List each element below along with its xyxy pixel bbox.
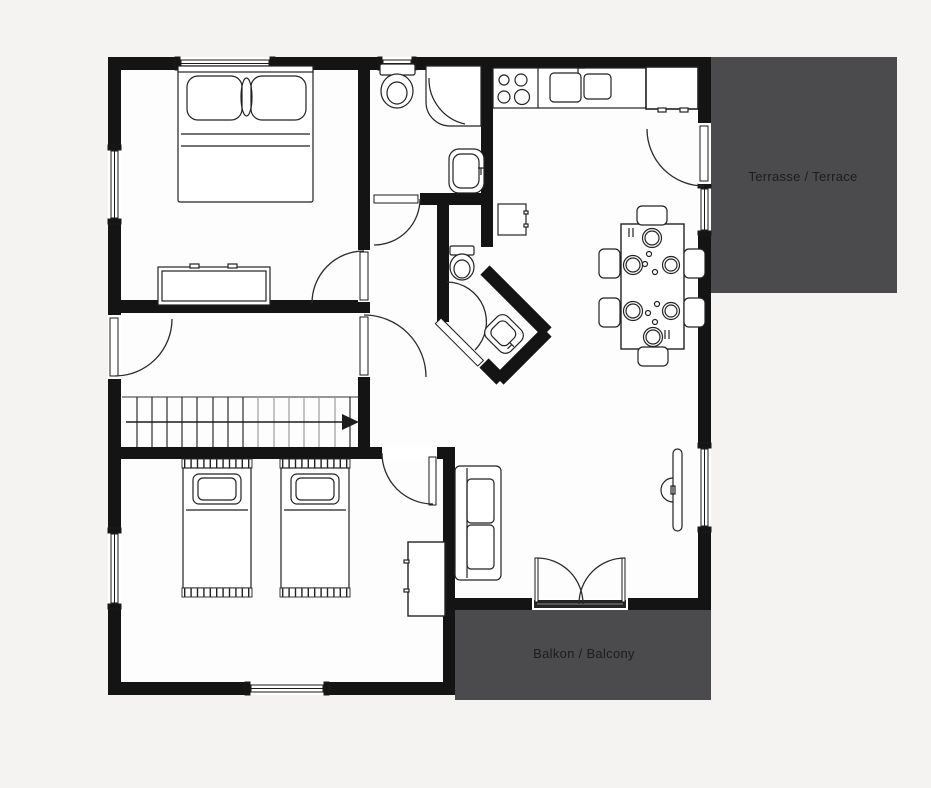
wc-toilet-icon — [450, 246, 474, 280]
bathroom-sink-icon — [449, 149, 485, 193]
page-background: { "labels": { "terrace": "Terrasse / Ter… — [0, 0, 931, 783]
single-bed-icon — [182, 459, 252, 597]
floor-plan-canvas: Terrasse / Terrace Balkon / Balcony — [0, 0, 931, 788]
balcony-label: Balkon / Balcony — [533, 646, 635, 661]
wall-bath-bottom-stub — [420, 193, 437, 205]
fridge-icon — [646, 67, 698, 112]
wall-shaft-right — [481, 193, 493, 247]
chair-icon — [637, 206, 667, 225]
chair-icon — [684, 249, 705, 278]
window — [698, 184, 711, 235]
wall-hall-right — [358, 377, 370, 447]
chair-icon — [599, 298, 620, 327]
terrace-label: Terrasse / Terrace — [748, 169, 857, 184]
window — [108, 145, 121, 224]
toilet-icon — [380, 64, 415, 108]
corner-shower-icon — [426, 66, 481, 126]
chair-icon — [684, 298, 705, 327]
chair-icon — [599, 249, 620, 278]
single-bed-icon — [280, 459, 350, 597]
chair-icon — [638, 347, 668, 366]
wardrobe-icon — [404, 542, 445, 616]
sofa-icon — [455, 466, 501, 580]
double-bed-icon — [178, 66, 313, 202]
dresser-icon — [158, 264, 270, 305]
wall-stairs-bottom — [108, 447, 382, 459]
window — [698, 443, 711, 532]
window — [108, 528, 121, 609]
wall-shaft-left — [437, 193, 449, 247]
small-cabinet-icon — [498, 204, 528, 235]
wall-bedroom1-right — [358, 57, 370, 250]
window — [245, 682, 329, 695]
wall-stairs-bottom-stub — [437, 447, 455, 459]
wall-wc-left — [437, 247, 449, 322]
